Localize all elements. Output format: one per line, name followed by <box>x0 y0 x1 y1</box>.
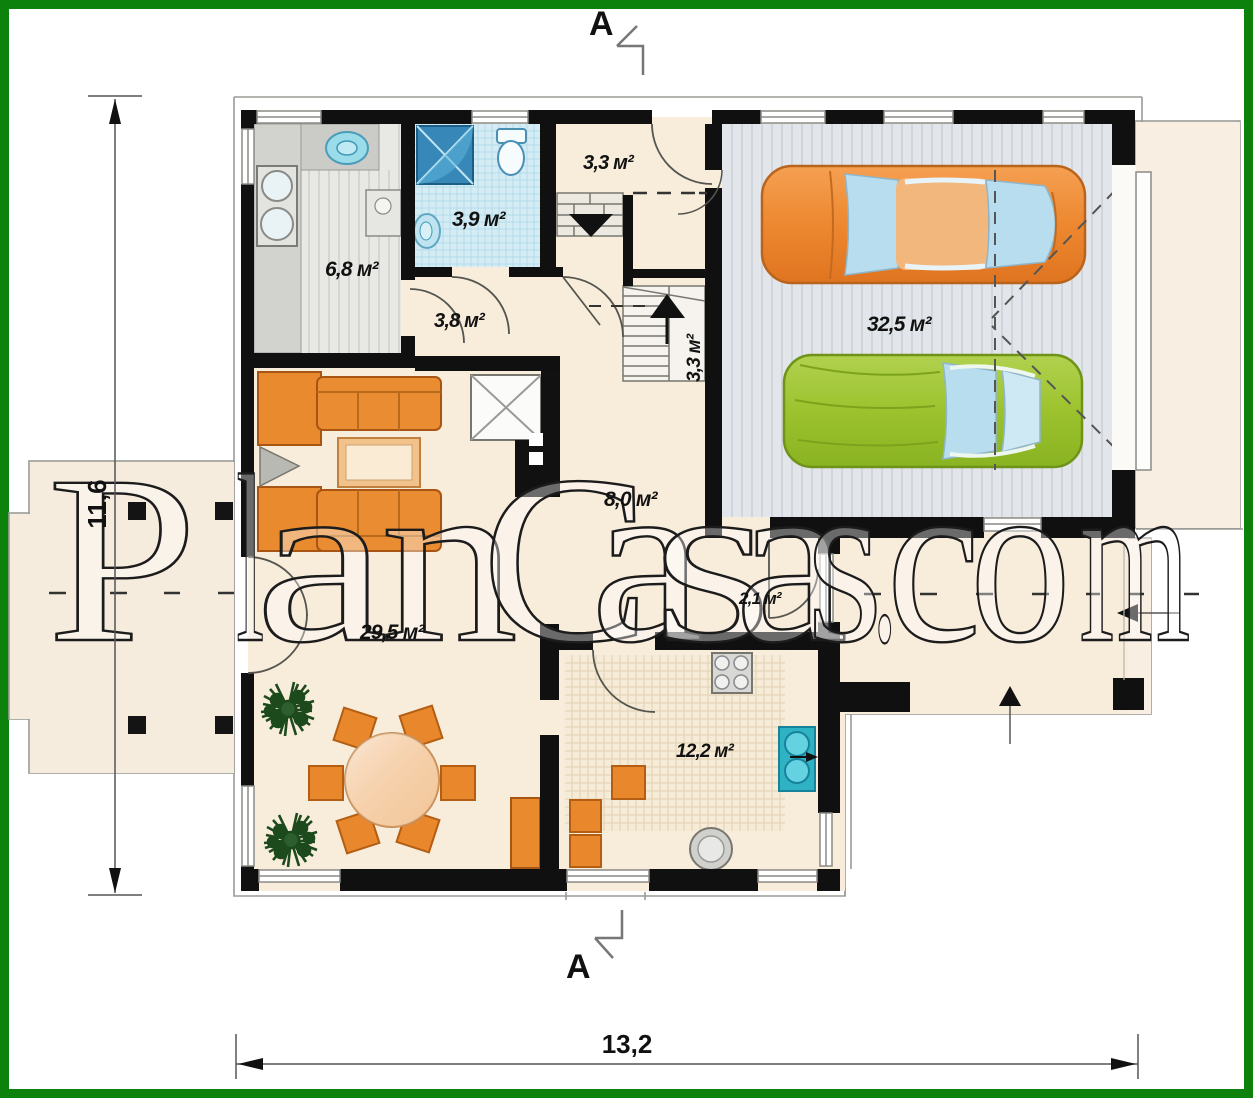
svg-text:A: A <box>566 948 591 986</box>
svg-text:8,0 м²: 8,0 м² <box>604 488 659 511</box>
svg-text:6,8 м²: 6,8 м² <box>325 258 380 281</box>
svg-text:12,2 м²: 12,2 м² <box>676 741 735 762</box>
svg-text:a: a <box>255 426 389 692</box>
svg-text:c: c <box>886 428 981 693</box>
svg-text:3,3 м²: 3,3 м² <box>583 152 635 174</box>
svg-text:32,5 м²: 32,5 м² <box>867 313 932 336</box>
svg-text:2,1 м²: 2,1 м² <box>738 589 783 608</box>
svg-text:11,6: 11,6 <box>82 479 112 528</box>
svg-text:13,2: 13,2 <box>602 1029 653 1059</box>
svg-text:s: s <box>807 427 883 693</box>
svg-text:29,5 м²: 29,5 м² <box>359 621 425 644</box>
svg-text:P: P <box>47 427 198 692</box>
svg-text:m: m <box>1079 426 1190 692</box>
svg-text:o: o <box>970 427 1071 693</box>
svg-text:3,9 м²: 3,9 м² <box>452 208 507 231</box>
svg-text:3,8 м²: 3,8 м² <box>434 310 486 332</box>
svg-text:3,3 м²: 3,3 м² <box>684 333 705 382</box>
svg-text:A: A <box>589 5 614 43</box>
